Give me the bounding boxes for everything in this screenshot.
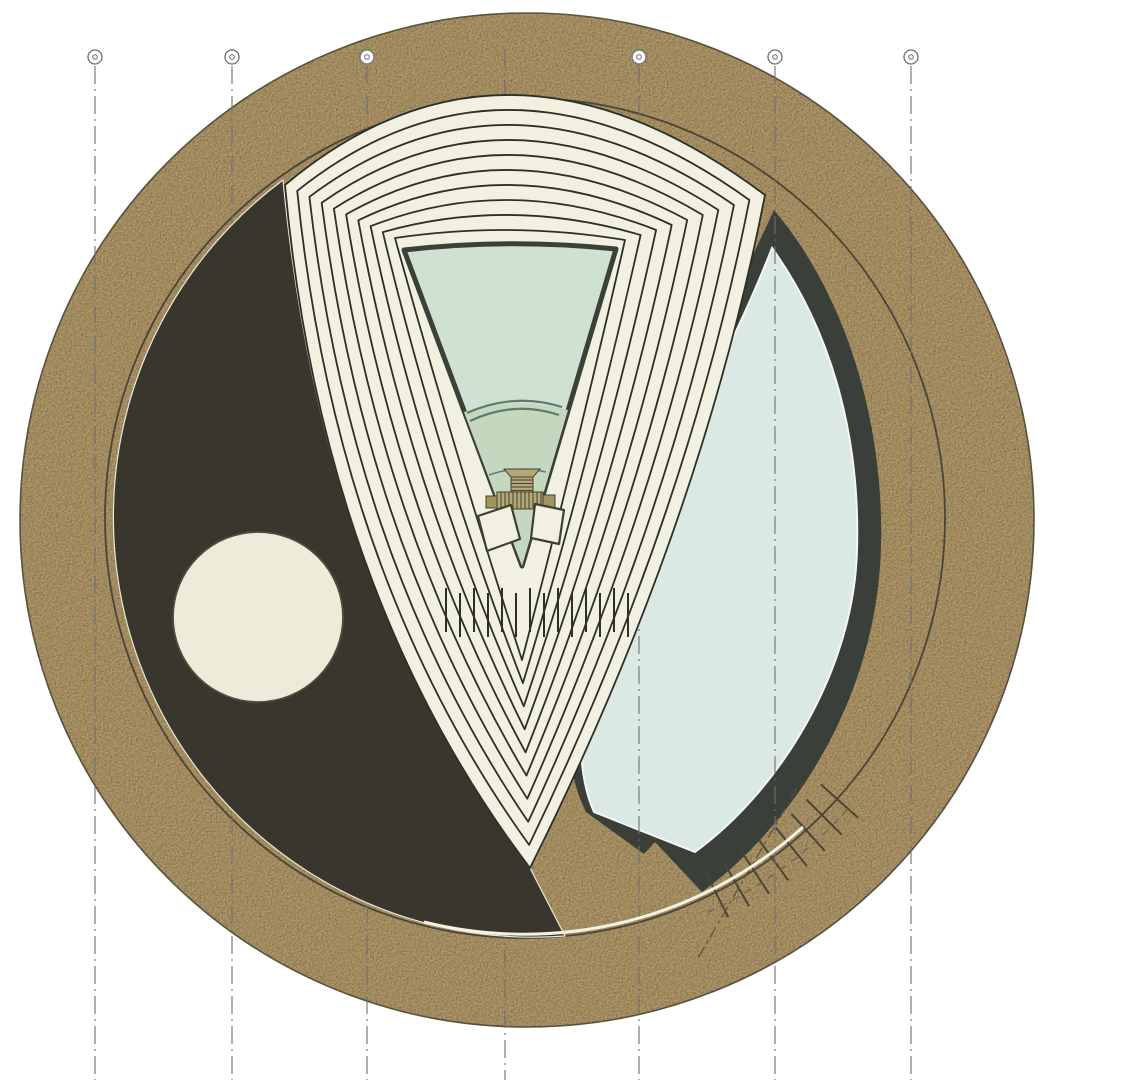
architectural-plan-canvas [0,0,1126,1080]
grid-bubble-marker [360,50,374,64]
plan-svg [0,0,1126,1080]
grid-bubble-marker [88,50,102,64]
machine-cap [504,469,540,477]
stage-pad [531,504,564,544]
machine-column [511,477,533,492]
machine-side-tab [486,496,497,508]
accent-cream-circle [173,532,343,702]
grid-bubble-marker [632,50,646,64]
grid-bubble-marker [225,50,239,64]
grid-bubble-marker [768,50,782,64]
grid-bubble-marker [904,50,918,64]
